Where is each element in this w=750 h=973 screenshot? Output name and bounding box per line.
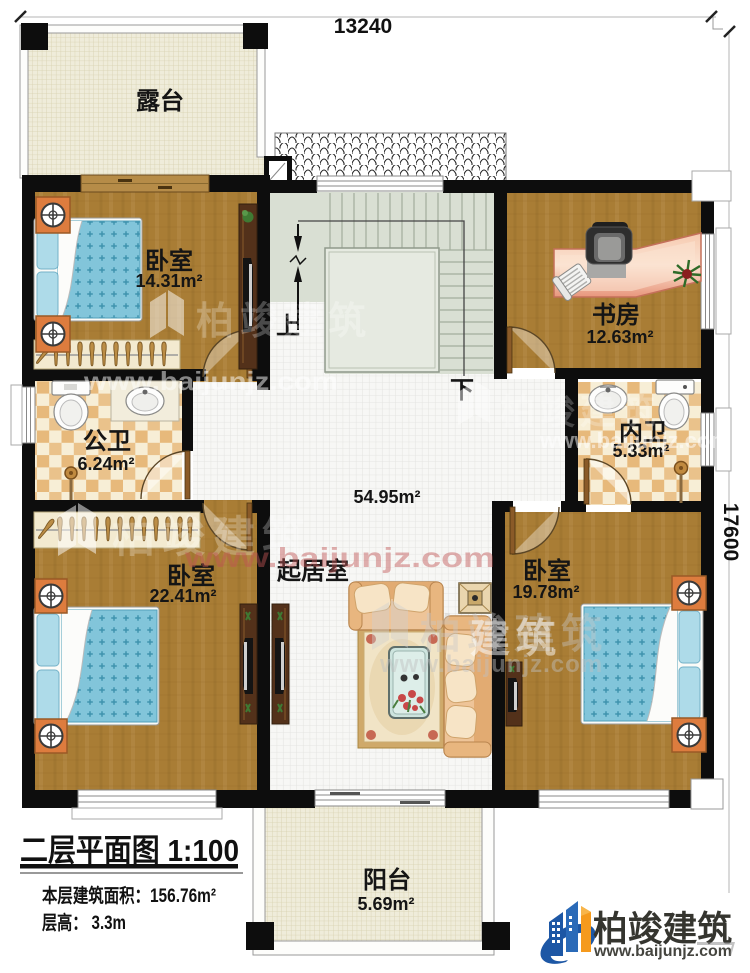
svg-text:露台: 露台: [136, 87, 184, 115]
svg-text:建筑: 建筑: [470, 617, 562, 661]
svg-text:www.baijunjz.com: www.baijunjz.com: [83, 366, 338, 396]
svg-text:19.78m²: 19.78m²: [512, 582, 579, 602]
svg-text:22.41m²: 22.41m²: [149, 586, 216, 606]
svg-text:5.69m²: 5.69m²: [357, 894, 414, 914]
svg-text:13240: 13240: [334, 15, 392, 38]
svg-text:www.baijunjz.com: www.baijunjz.com: [184, 542, 495, 573]
svg-text:本层建筑面积：156.76m²: 本层建筑面积：156.76m²: [42, 884, 216, 907]
svg-text:www.baijunjz.com: www.baijunjz.com: [593, 943, 732, 960]
svg-text:卧室: 卧室: [523, 557, 571, 585]
svg-text:17600: 17600: [719, 503, 742, 561]
svg-text:14.31m²: 14.31m²: [135, 271, 202, 291]
svg-text:54.95m²: 54.95m²: [353, 487, 420, 507]
svg-text:柏竣建筑: 柏竣建筑: [196, 301, 372, 343]
svg-text:12.63m²: 12.63m²: [586, 327, 653, 347]
svg-text:二层平面图 1:100: 二层平面图 1:100: [20, 833, 239, 868]
svg-text:柏竣建筑: 柏竣建筑: [500, 392, 660, 432]
svg-text:6.24m²: 6.24m²: [77, 454, 134, 474]
svg-text:阳台: 阳台: [363, 866, 411, 894]
svg-text:公卫: 公卫: [83, 428, 131, 455]
svg-text:www.baijunjz.com: www.baijunjz.com: [539, 428, 730, 453]
svg-text:书房: 书房: [592, 301, 640, 329]
svg-text:层高： 3.3m: 层高： 3.3m: [42, 911, 126, 934]
